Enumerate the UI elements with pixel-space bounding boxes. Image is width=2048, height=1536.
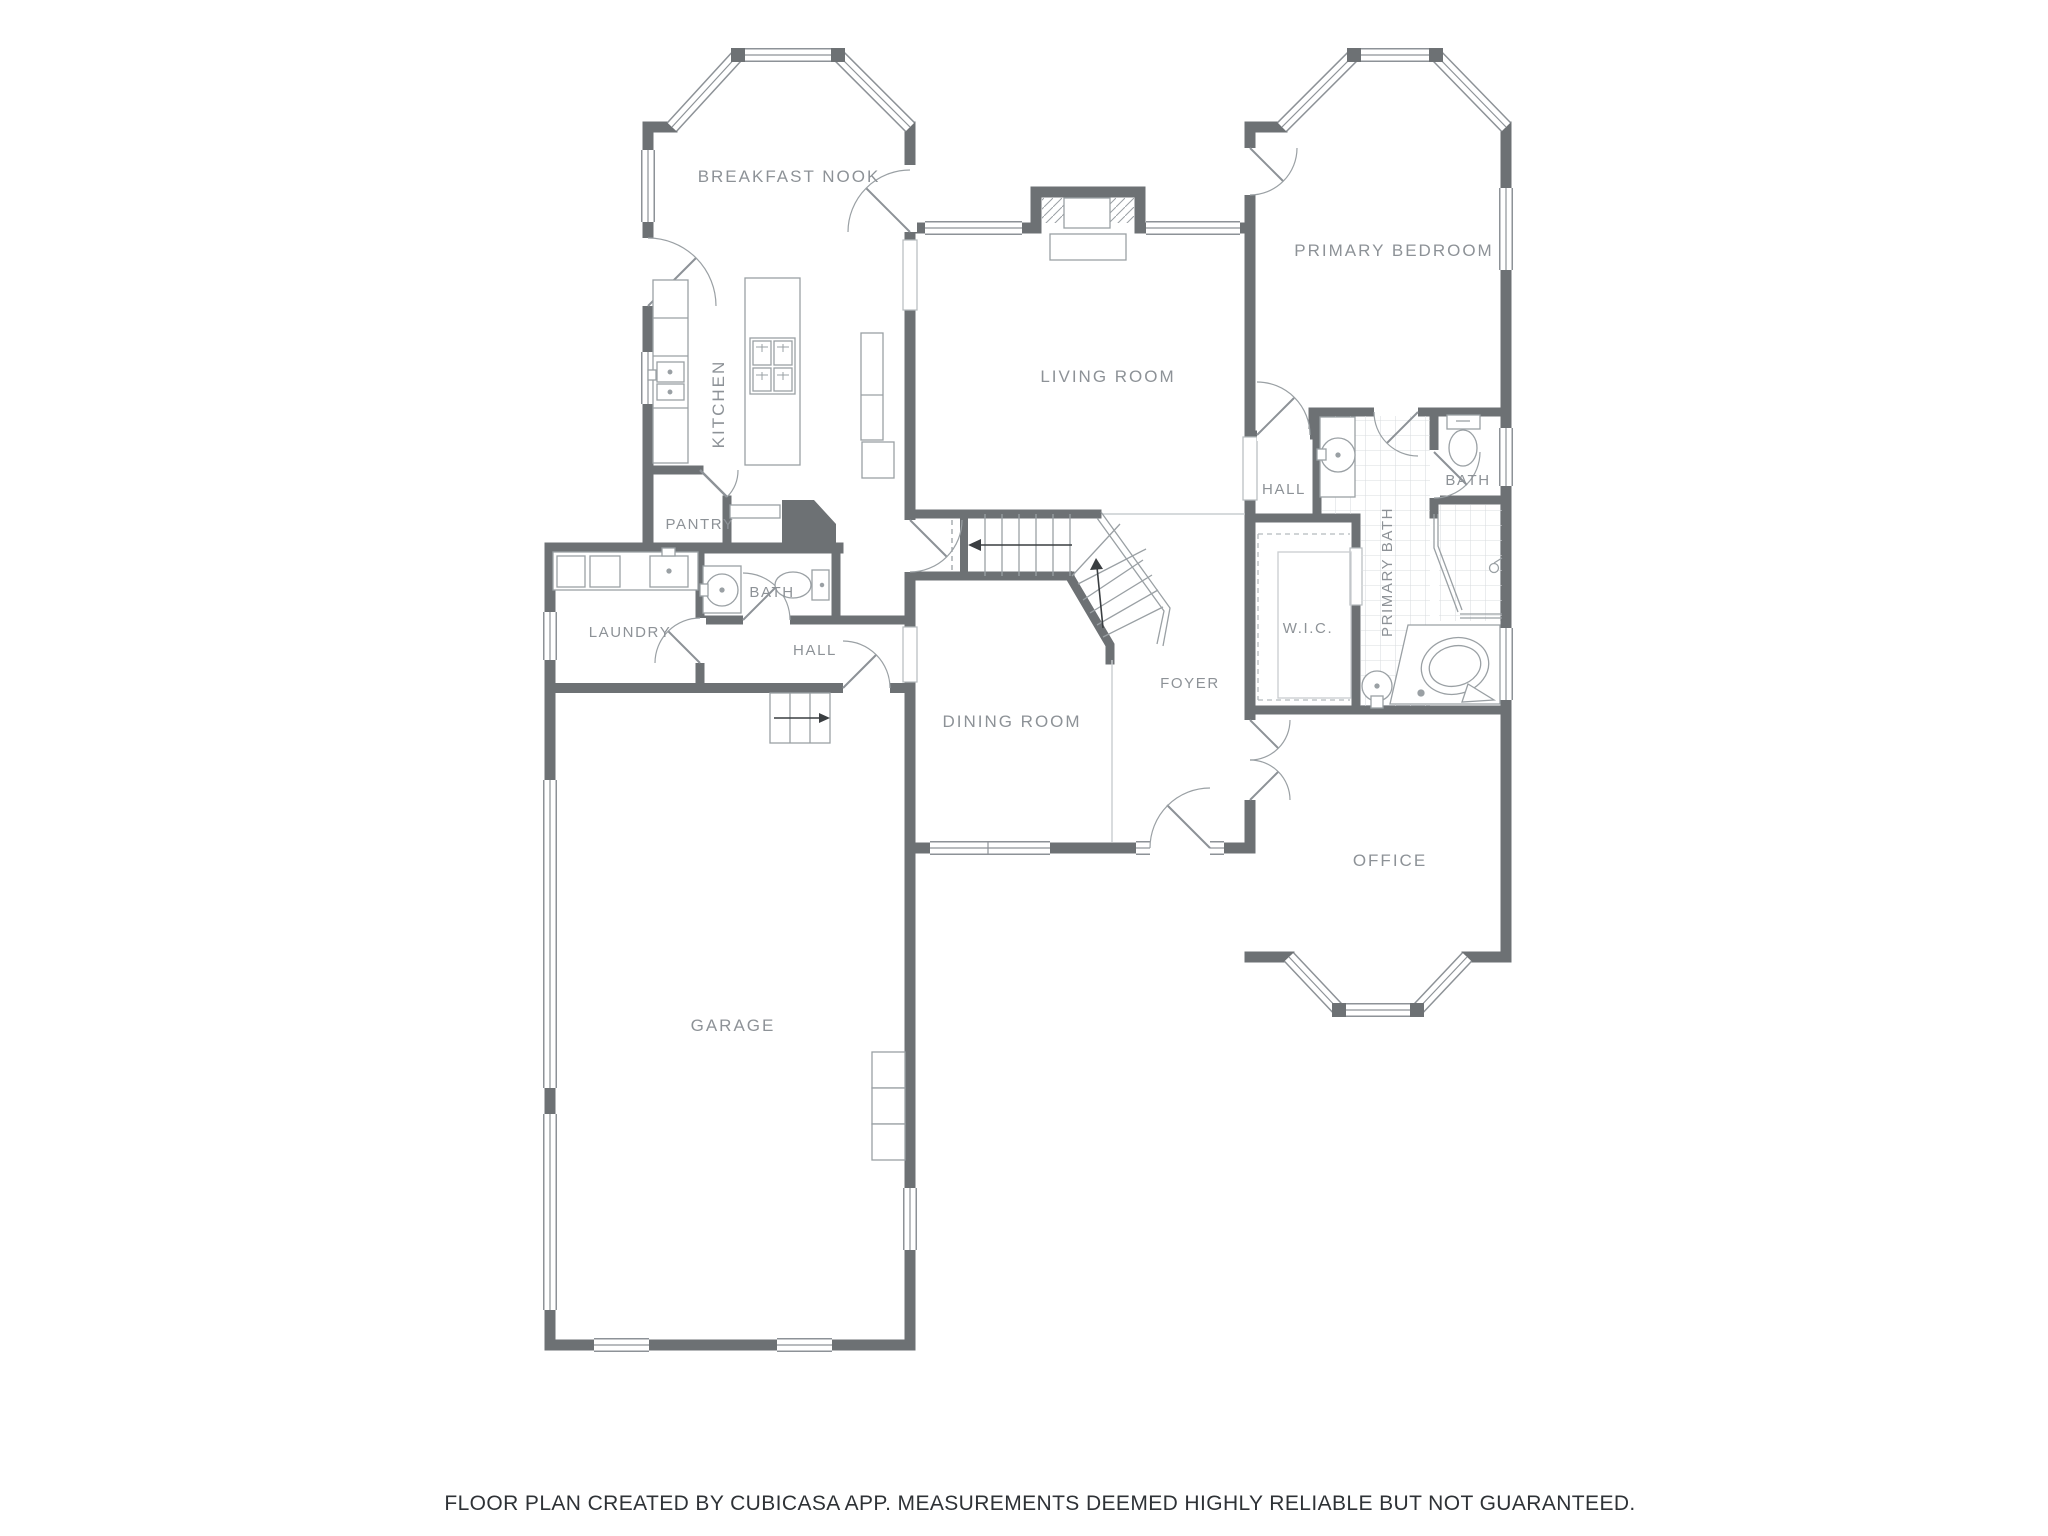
hall-vanity [1317, 417, 1355, 497]
room-label-office: OFFICE [1353, 851, 1427, 870]
stairs-garage [770, 693, 830, 743]
room-label-living-room: LIVING ROOM [1040, 367, 1175, 386]
room-label-pantry: PANTRY [665, 516, 734, 533]
garage-cabinets [872, 1052, 905, 1160]
bath-right-toilet [1447, 415, 1480, 466]
bay-window-primary-bedroom [1282, 48, 1506, 127]
walls [550, 127, 1506, 1345]
door-bedroom-hall [1257, 382, 1310, 435]
door-bedroom-west [1250, 148, 1297, 195]
bathtub [1390, 625, 1500, 704]
room-label-hall-left: HALL [793, 642, 837, 659]
floor-plan-page: BREAKFAST NOOK KITCHEN LIVING ROOM PRIMA… [0, 0, 2048, 1536]
door-pantry [700, 470, 738, 497]
room-label-hall-right: HALL [1262, 481, 1306, 498]
front-door [1150, 788, 1210, 848]
alcove-counter [730, 505, 780, 518]
room-label-kitchen: KITCHEN [709, 360, 728, 449]
kitchen-tall-cabinet [861, 333, 894, 478]
bath-left-vanity [700, 566, 741, 613]
shower-tile [1439, 505, 1502, 621]
room-label-breakfast-nook: BREAKFAST NOOK [698, 167, 881, 186]
room-label-bath-right: BATH [1445, 472, 1490, 489]
door-stair-landing [910, 520, 962, 572]
shower-head [1490, 564, 1499, 573]
room-label-dining-room: DINING ROOM [942, 712, 1081, 731]
room-label-foyer: FOYER [1160, 675, 1220, 692]
wic-shelving [1258, 534, 1351, 700]
room-label-bath-left: BATH [749, 584, 794, 601]
laundry-counter [553, 548, 698, 590]
footer-disclaimer: FLOOR PLAN CREATED BY CUBICASA APP. MEAS… [444, 1492, 1635, 1515]
door-garage [843, 641, 890, 688]
bay-window-breakfast-nook [672, 48, 910, 127]
room-label-garage: GARAGE [691, 1016, 776, 1035]
kitchen-counter [648, 280, 688, 463]
kitchen-island [745, 278, 800, 465]
fireplace [1042, 198, 1134, 260]
floor-plan: BREAKFAST NOOK KITCHEN LIVING ROOM PRIMA… [0, 0, 2048, 1536]
bay-window-office [1289, 957, 1467, 1017]
room-label-primary-bedroom: PRIMARY BEDROOM [1294, 241, 1493, 260]
room-label-wic: W.I.C. [1283, 620, 1333, 637]
room-label-primary-bath: PRIMARY BATH [1379, 507, 1396, 637]
room-label-laundry: LAUNDRY [589, 624, 672, 641]
